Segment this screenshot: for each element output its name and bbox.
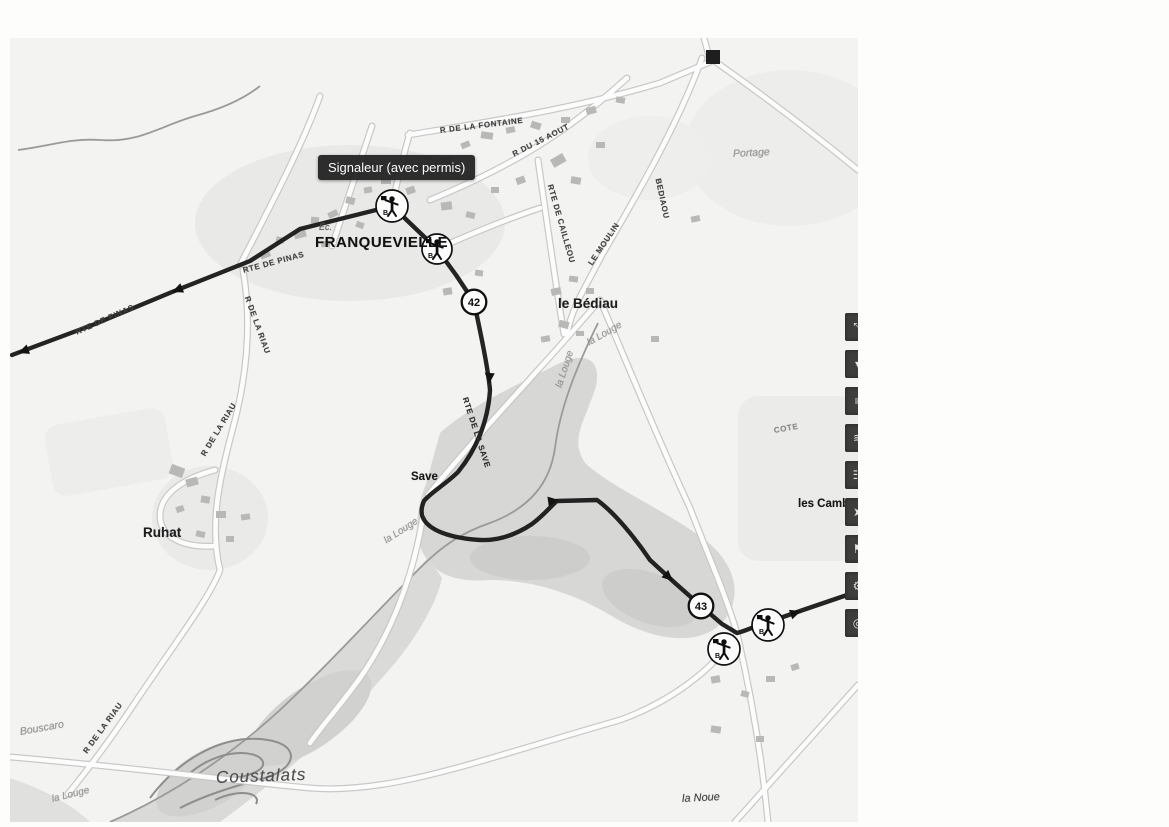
page: { "map": { "tooltip": { "label": "Signal… (0, 0, 1169, 827)
km-marker-43[interactable]: 43 (689, 594, 714, 619)
waves-button[interactable]: ≋ (845, 424, 858, 452)
marker-button[interactable]: ▾ (845, 350, 858, 378)
signaleur-marker-4[interactable]: B (708, 633, 740, 665)
svg-text:B: B (759, 629, 764, 636)
cursor-button[interactable]: ➤ (845, 498, 858, 526)
km-marker-42[interactable]: 42 (462, 290, 487, 315)
people-button[interactable]: ☷ (845, 461, 858, 489)
svg-text:B: B (715, 653, 720, 660)
svg-text:42: 42 (468, 297, 480, 309)
terrain-patches (10, 70, 858, 822)
signaleur-marker-1[interactable]: B (376, 190, 408, 222)
svg-text:B: B (428, 253, 433, 260)
signaleur-marker-3[interactable]: B (752, 609, 784, 641)
route-button[interactable]: ≡ (845, 387, 858, 415)
roundabout-button[interactable]: ◎ (845, 609, 858, 637)
map-viewport[interactable]: 42 43 B B B B FRANQUEVIELLEÉc.le BédiauR… (10, 38, 858, 822)
svg-text:B: B (383, 210, 388, 217)
black-square-building (706, 50, 720, 64)
signaleur-button[interactable]: ⚑ (845, 535, 858, 563)
signaleur-tooltip: Signaleur (avec permis) (318, 155, 475, 180)
svg-text:43: 43 (695, 601, 707, 613)
gear-button[interactable]: ⚙ (845, 572, 858, 600)
signaleur-marker-2[interactable]: B (422, 234, 452, 264)
move-arrows-button[interactable]: ⤡ (845, 313, 858, 341)
